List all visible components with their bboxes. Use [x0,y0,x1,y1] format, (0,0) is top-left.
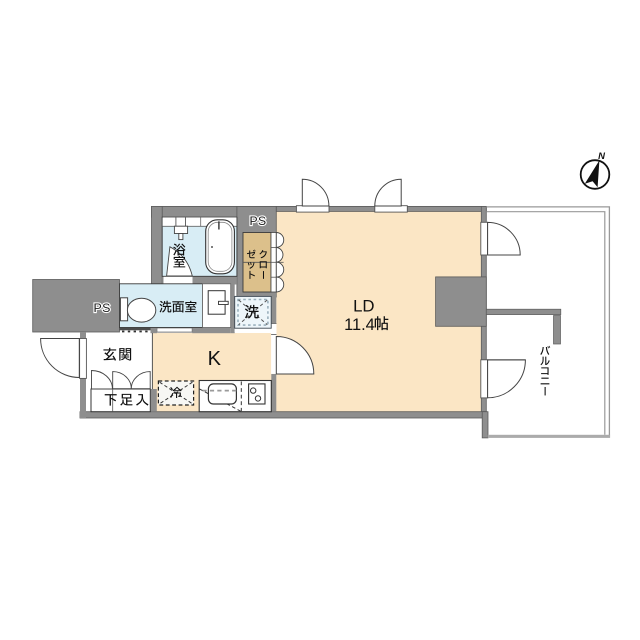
svg-text:PS: PS [249,214,266,228]
svg-text:PS: PS [94,301,111,315]
svg-text:LD: LD [353,297,374,316]
svg-text:11.4: 11.4 [344,316,375,334]
svg-text:K: K [208,348,222,370]
svg-text:N: N [598,151,606,162]
